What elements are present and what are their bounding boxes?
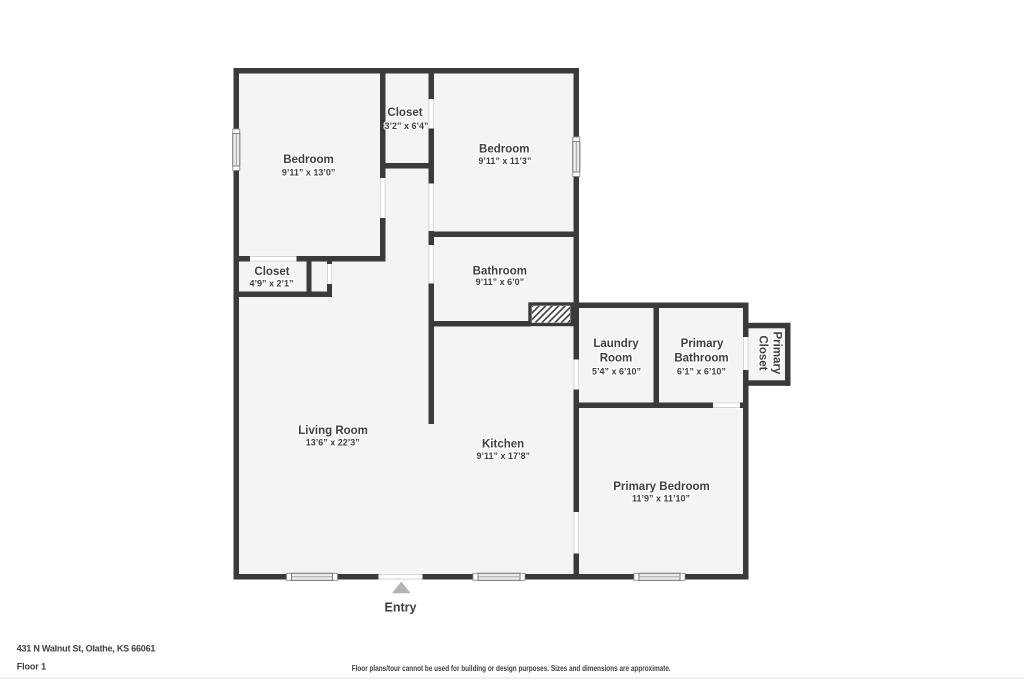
svg-text:Primary Bedroom: Primary Bedroom <box>613 481 710 493</box>
svg-text:Bedroom: Bedroom <box>479 144 529 156</box>
svg-text:9’11” x 11’3”: 9’11” x 11’3” <box>478 156 531 166</box>
svg-text:5’4” x 6’10”: 5’4” x 6’10” <box>592 366 641 376</box>
svg-text:Bathroom: Bathroom <box>674 353 728 365</box>
svg-text:Laundry: Laundry <box>593 338 639 350</box>
svg-text:Room: Room <box>600 353 633 365</box>
svg-text:Floor plans/tour cannot be use: Floor plans/tour cannot be used for buil… <box>352 664 671 673</box>
svg-text:Kitchen: Kitchen <box>482 439 524 451</box>
svg-text:6’1” x 6’10”: 6’1” x 6’10” <box>677 366 726 376</box>
svg-text:3’2” x 6’4”: 3’2” x 6’4” <box>384 121 428 131</box>
svg-text:Primary: Primary <box>681 338 724 350</box>
svg-text:Closet: Closet <box>387 107 422 119</box>
svg-text:431 N Walnut St, Olathe, KS 66: 431 N Walnut St, Olathe, KS 66061 <box>17 644 156 654</box>
svg-text:Primary: Primary <box>770 331 782 374</box>
svg-text:Closet: Closet <box>756 335 768 370</box>
svg-text:Entry: Entry <box>385 601 417 615</box>
svg-text:Living Room: Living Room <box>298 425 368 437</box>
svg-text:13’6” x 22’3”: 13’6” x 22’3” <box>306 438 360 448</box>
svg-text:9’11” x 6’0”: 9’11” x 6’0” <box>476 277 525 287</box>
svg-text:Closet: Closet <box>254 266 289 278</box>
svg-text:9’11” x 13’0”: 9’11” x 13’0” <box>282 167 336 177</box>
svg-text:4’9” x 2’1”: 4’9” x 2’1” <box>249 279 293 289</box>
svg-text:Floor 1: Floor 1 <box>17 662 46 672</box>
svg-text:9’11” x 17’8”: 9’11” x 17’8” <box>477 451 531 461</box>
svg-text:Bedroom: Bedroom <box>283 154 333 166</box>
svg-text:Bathroom: Bathroom <box>473 265 527 277</box>
svg-text:11’9” x 11’10”: 11’9” x 11’10” <box>632 493 690 503</box>
